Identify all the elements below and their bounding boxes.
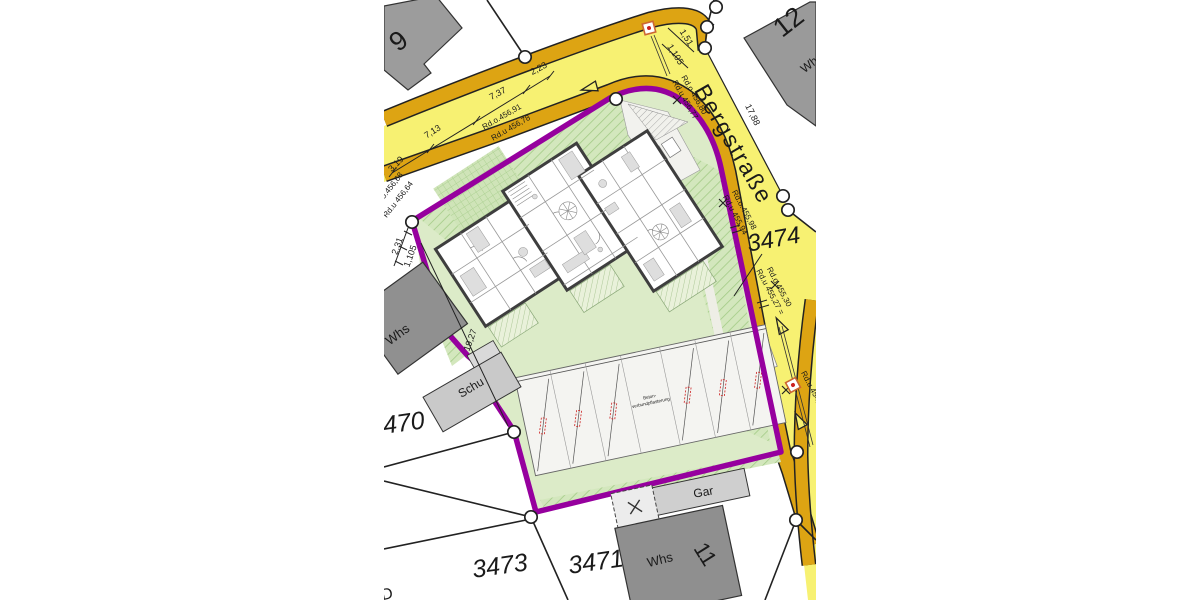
parcel-3470-label: 3470 [367, 406, 426, 441]
parcel-line-w3 [384, 519, 531, 549]
parcel-line-nw [487, 0, 525, 57]
parcel-line-s2 [765, 520, 796, 600]
site-plan-page: Beton- verbundpflasterung [0, 0, 1200, 600]
site-plan-map: Beton- verbundpflasterung [0, 0, 1200, 600]
parcel-line-w2 [384, 481, 531, 517]
parcel-line-s1 [531, 517, 568, 600]
dim-label: 1,105 [402, 244, 419, 269]
parcel-3471-label: 3471 [566, 544, 625, 579]
parcel-3473-label: 3473 [470, 548, 529, 583]
partial-letter-label: D [380, 585, 395, 600]
dim-label: 2,31 [389, 236, 404, 256]
